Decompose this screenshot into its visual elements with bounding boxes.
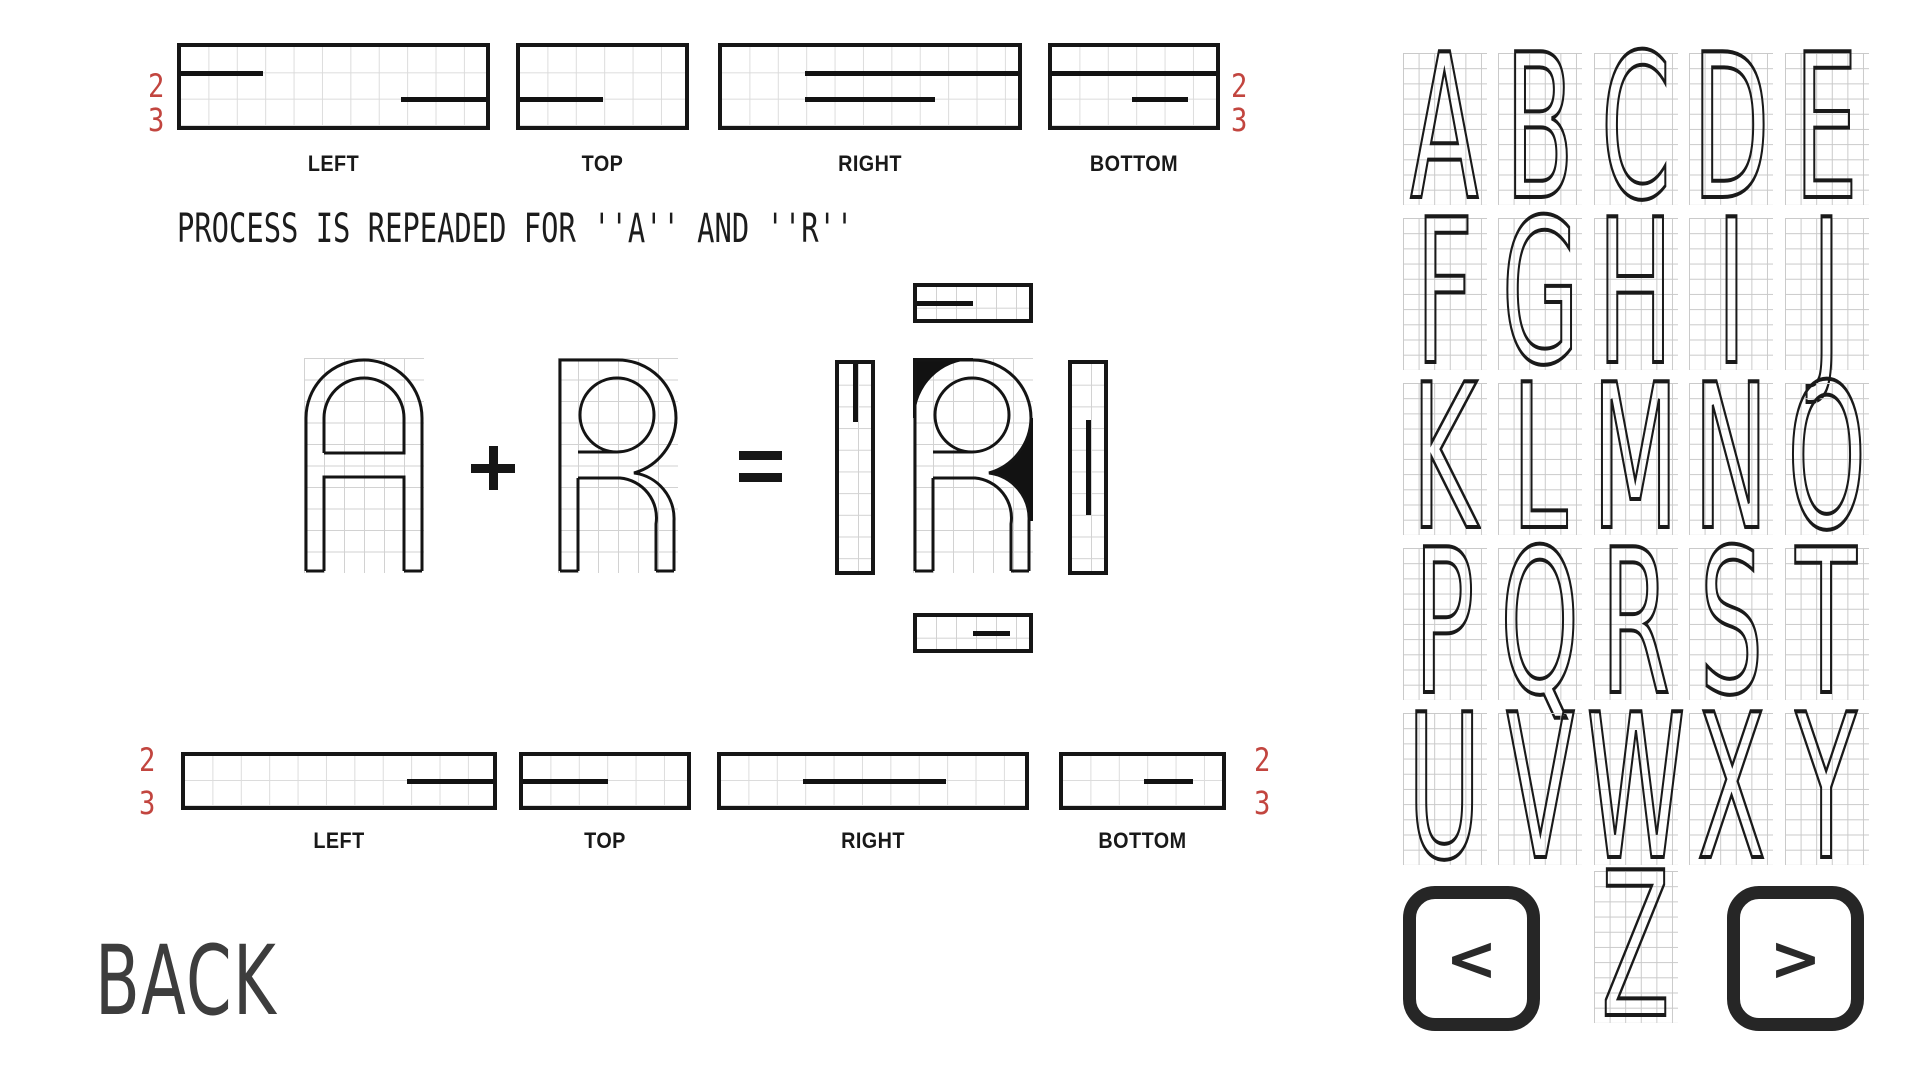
side-view-box-bottom-right: [717, 752, 1029, 810]
side-view-box-bottom-bottom: [1059, 752, 1226, 810]
side-view-label-bottom-top: TOP: [528, 828, 683, 854]
alphabet-letter-u: U: [1403, 713, 1487, 865]
alphabet-letter-y: Y: [1785, 713, 1869, 865]
letter-a-outline: [304, 358, 424, 573]
next-arrow-glyph: >: [1770, 922, 1822, 995]
equals-operator: [739, 451, 782, 483]
prev-arrow-glyph: <: [1446, 922, 1498, 995]
side-view-box-top-top: [516, 43, 689, 130]
side-view-box-bottom-left: [181, 752, 497, 810]
row-number-top-left-2: 2: [148, 67, 164, 105]
side-view-label-bottom-right: RIGHT: [733, 828, 1014, 854]
row-number-top-left-3: 3: [148, 101, 164, 139]
edge-line-segment: [805, 97, 935, 102]
result-view-strip-right: [1068, 360, 1108, 575]
edge-line-segment: [973, 631, 1010, 636]
alphabet-letter-glyph-v: V: [1506, 689, 1574, 889]
edge-line-segment: [407, 779, 493, 784]
edge-line-segment: [401, 97, 486, 102]
edge-line-segment: [1144, 779, 1193, 784]
side-view-label-top-right: RIGHT: [733, 151, 1007, 177]
result-composite-drawing: [913, 358, 1033, 573]
side-view-box-top-bottom: [1048, 43, 1220, 130]
result-view-strip-bottom: [913, 613, 1033, 653]
plus-bar-vertical: [489, 446, 498, 490]
side-view-label-top-left: LEFT: [193, 151, 475, 177]
edge-line-segment: [523, 779, 608, 784]
side-view-box-top-left: [177, 43, 490, 130]
row-number-bottom-left-3: 3: [139, 784, 155, 822]
alphabet-letter-glyph-x: X: [1697, 689, 1766, 889]
alphabet-letter-z: Z: [1594, 871, 1678, 1023]
edge-line-segment: [1052, 71, 1216, 76]
edge-line-segment: [520, 97, 603, 102]
row-number-top-right-3: 3: [1231, 101, 1247, 139]
row-number-bottom-right-2: 2: [1254, 741, 1270, 779]
side-view-label-top-bottom: BOTTOM: [1057, 151, 1212, 177]
side-view-label-bottom-left: LEFT: [197, 828, 481, 854]
letter-a-grid: [304, 358, 424, 573]
edge-line-segment: [917, 301, 973, 306]
process-caption: PROCESS IS REPEADED FOR ''A'' AND ''R'': [177, 206, 853, 252]
edge-line-segment: [805, 71, 1018, 76]
edge-line-segment: [853, 364, 858, 422]
side-view-box-top-right: [718, 43, 1022, 130]
alphabet-letter-x: X: [1689, 713, 1773, 865]
alphabet-letter-v: V: [1498, 713, 1582, 865]
row-number-top-right-2: 2: [1231, 67, 1247, 105]
row-number-bottom-right-3: 3: [1254, 784, 1270, 822]
plus-operator: [471, 446, 515, 490]
edge-line-segment: [181, 71, 263, 76]
equals-bar-top: [739, 451, 782, 460]
prev-letter-button[interactable]: <: [1403, 886, 1540, 1031]
side-view-label-top-top: TOP: [525, 151, 681, 177]
edge-line-segment: [1132, 97, 1188, 102]
xor-region-top-left: [913, 358, 973, 418]
edge-line-segment: [1086, 420, 1091, 515]
result-view-strip-left: [835, 360, 875, 575]
back-button[interactable]: BACK: [95, 925, 277, 1037]
result-composite-grid: [913, 358, 1033, 573]
result-view-strip-top: [913, 283, 1033, 323]
alphabet-letter-glyph-z: Z: [1601, 847, 1670, 1047]
next-letter-button[interactable]: >: [1727, 886, 1864, 1031]
row-number-bottom-left-2: 2: [139, 741, 155, 779]
tutorial-screen: PROCESS IS REPEADED FOR ''A'' AND ''R'' …: [0, 0, 1920, 1080]
side-view-box-bottom-top: [519, 752, 691, 810]
edge-line-segment: [803, 779, 946, 784]
letter-r-grid: [558, 358, 678, 573]
letter-r-outline: [558, 358, 678, 573]
side-view-label-bottom-bottom: BOTTOM: [1067, 828, 1217, 854]
alphabet-letter-glyph-y: Y: [1796, 689, 1857, 889]
equals-bar-bottom: [739, 473, 782, 482]
alphabet-letter-glyph-u: U: [1408, 689, 1481, 889]
